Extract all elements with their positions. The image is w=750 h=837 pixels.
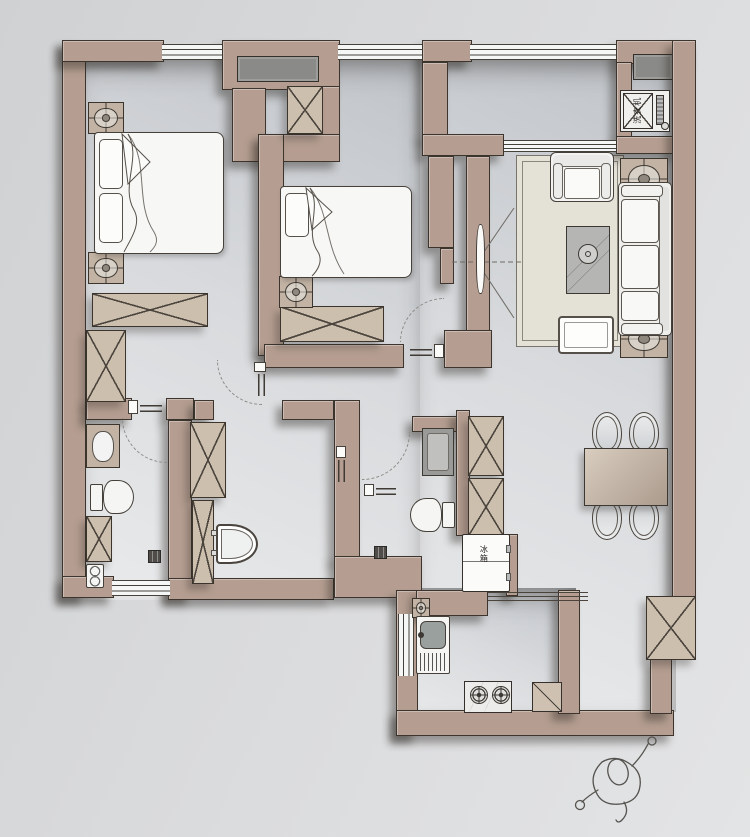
window-master-bedroom [162,44,222,60]
washbasin-bathroom1 [86,424,120,468]
door-jamb [128,400,138,414]
shower-drain [148,550,161,563]
washing-machine-controls [656,95,664,125]
vanity-sink [422,428,454,476]
shower-room-cabinet-2 [192,500,214,584]
sofa [618,182,672,336]
toilet-bowl [103,480,134,514]
toilet-hinge [211,550,217,556]
fridge-handle [506,573,511,581]
nightstand-lamp [88,252,124,284]
sofa-cushion [621,291,659,321]
wall-segment [282,400,334,420]
wall-right [672,40,696,600]
door-leaf-mark [140,405,162,413]
door-jamb [364,484,374,496]
nightstand-lamp [279,276,313,308]
nightstand-lamp [88,102,124,134]
shower-drain [374,546,387,559]
armchair-cushion [564,168,600,199]
plant-center [585,251,591,257]
duct-shaft [287,86,323,134]
toilet-tank [442,502,455,528]
shower-room-cabinet-1 [190,422,226,498]
wall-niche-window [237,56,319,82]
toilet-tank [90,484,103,511]
wall-segment [650,658,672,714]
wall-segment [444,330,492,368]
window-kitchen [398,614,414,676]
armchair-arm [553,163,563,199]
floor-plan: 洗衣机 冰箱 [0,0,750,837]
drainboard [420,653,446,671]
hall-cabinet-1 [468,416,504,476]
armchair-arm [601,163,611,199]
dining-tall-cabinet [646,596,696,660]
bathroom1-cabinet [86,516,112,562]
fridge-label: 冰箱 [479,545,487,563]
door-jamb [336,446,346,458]
tv-screen [564,322,608,348]
sofa-cushion [621,199,659,243]
window-bathroom1 [112,580,170,596]
tv [558,316,614,354]
wall-left [62,40,86,598]
vanity-basin [427,433,449,471]
entry-door-leaf [476,224,485,294]
plant [578,244,598,264]
sofa-armrest [621,323,663,335]
door-jamb [254,362,266,372]
armchair [550,152,614,202]
fridge-handle [506,545,511,553]
washing-machine-label: 洗衣机 [634,70,642,150]
door-leaf-mark [338,460,346,482]
double-bowl-unit [86,564,104,588]
bed-blanket-sketch [280,186,412,278]
wall-segment [422,62,448,138]
door-leaf-mark [376,488,396,496]
wardrobe-bedroom2 [280,306,384,342]
sofa-cushion [621,245,659,289]
column-marker [412,598,430,618]
sofa-back [659,187,669,331]
wall-segment [194,400,214,420]
gas-stove [464,681,512,713]
window-living-balcony [504,140,616,152]
burner [470,686,488,704]
faucet [418,632,424,638]
hall-cabinet-2 [468,478,504,536]
wall-segment [428,156,454,248]
kitchen-sliding-door [488,592,588,602]
wall-top-left [62,40,164,62]
door-leaf-mark [410,349,432,357]
wall-segment [422,40,472,62]
door-jamb [434,344,444,358]
kitchen-sink-unit [416,616,450,674]
corner-counter [532,682,562,712]
door-leaf-mark [258,374,266,396]
window-bedroom2 [338,44,422,60]
wall-laundry-bottom [616,136,678,154]
toilet-bowl [410,498,442,532]
toilet-hinge [211,530,217,536]
entry-door-swing [452,200,524,330]
washbasin-bowl [92,431,114,462]
burner [492,686,510,704]
washing-machine [620,90,670,132]
wall-bathroom1-right [168,420,192,598]
fridge [462,534,510,592]
wall-segment [166,398,194,420]
person-sketch [572,732,682,828]
sofa-armrest [621,185,663,197]
wall-bedroom2-south [264,344,404,368]
washing-machine-knob [661,122,669,130]
bed-blanket-sketch [94,132,224,254]
window-balcony [470,44,616,60]
dining-table [584,448,668,506]
wardrobe-master-1 [92,293,208,327]
wall-corridor-top [422,134,504,156]
wardrobe-master-2 [86,330,126,402]
